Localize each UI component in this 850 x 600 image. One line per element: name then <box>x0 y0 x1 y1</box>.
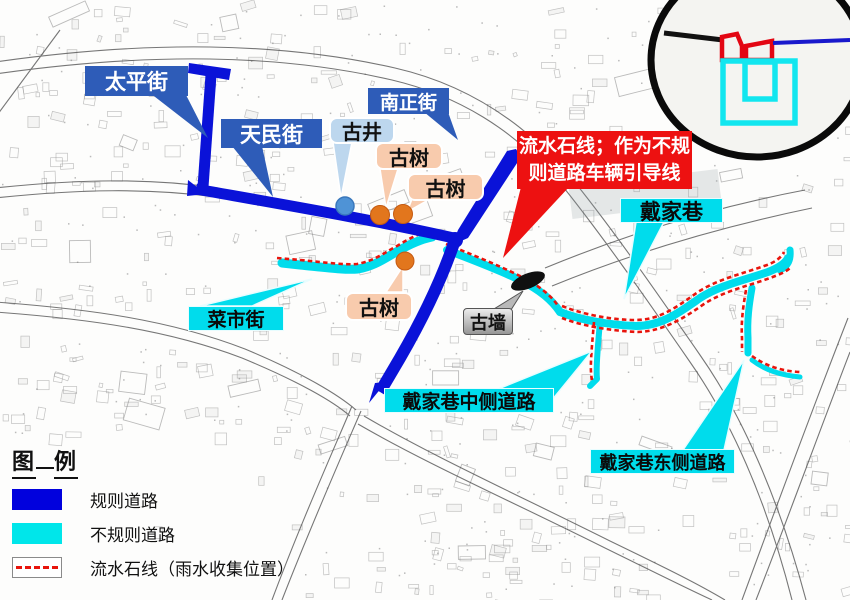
callout-line-1: 流水石线；作为不规 <box>519 133 690 160</box>
ancient-well-marker <box>336 197 354 215</box>
label-ancient-tree-1: 古树 <box>375 142 443 170</box>
red-dash-sample <box>16 566 58 569</box>
irregular-road-swatch <box>12 523 62 544</box>
label-daijia-lane: 戴家巷 <box>620 198 723 223</box>
label-daijia-east-road: 戴家巷东侧道路 <box>590 449 735 474</box>
label-ancient-well: 古井 <box>329 117 395 144</box>
legend: 图例 规则道路 不规则道路 流水石线（雨水收集位置） <box>12 444 294 578</box>
callout-line-2: 则道路车辆引导线 <box>528 160 680 187</box>
label-nanzheng-street: 南正街 <box>368 88 449 114</box>
legend-item-regular-road: 规则道路 <box>12 489 294 510</box>
label-daijia-mid-road: 戴家巷中侧道路 <box>384 388 554 413</box>
legend-item-water-stone-line: 流水石线（雨水收集位置） <box>12 557 294 578</box>
legend-title-right: 例 <box>54 449 78 479</box>
legend-label: 规则道路 <box>90 487 158 512</box>
label-ancient-tree-2: 古树 <box>407 173 484 201</box>
regular-road-swatch <box>12 489 62 510</box>
legend-title-left: 图 <box>12 449 36 479</box>
legend-item-irregular-road: 不规则道路 <box>12 523 294 544</box>
ancient-tree-marker-1 <box>371 206 390 225</box>
water-stone-line-callout: 流水石线；作为不规 则道路车辆引导线 <box>517 131 692 189</box>
label-ancient-tree-3: 古树 <box>345 292 413 321</box>
planning-map-canvas: 太平街 天民街 南正街 菜市街 戴家巷 戴家巷中侧道路 戴家巷东侧道路 古井 古… <box>0 0 850 600</box>
road-daijia-east-branch <box>748 288 752 353</box>
ancient-tree-marker-2 <box>394 205 413 224</box>
legend-title: 图例 <box>12 444 294 476</box>
label-tianmin-street: 天民街 <box>221 119 322 148</box>
label-ancient-wall: 古墙 <box>463 308 513 335</box>
ancient-tree-marker-3 <box>396 252 414 270</box>
water-stone-line-swatch <box>12 557 62 578</box>
label-caishi-street: 菜市街 <box>188 306 284 331</box>
legend-label: 流水石线（雨水收集位置） <box>90 555 294 580</box>
label-taiping-street: 太平街 <box>85 66 188 96</box>
legend-label: 不规则道路 <box>90 521 175 546</box>
